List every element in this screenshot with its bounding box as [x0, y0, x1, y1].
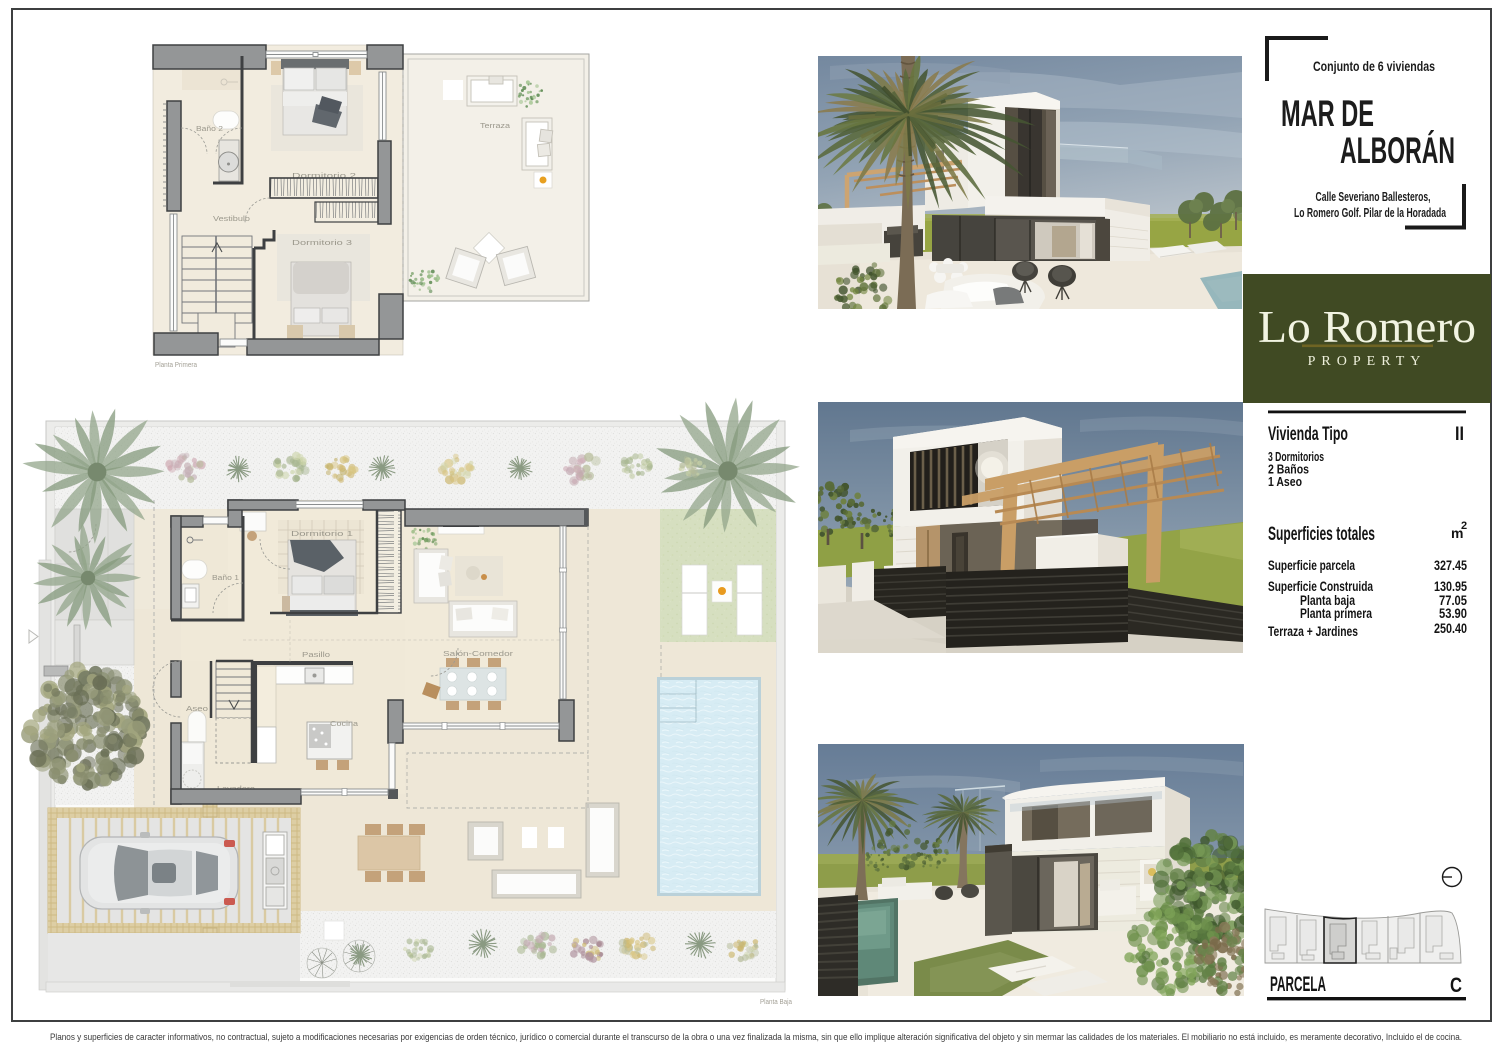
svg-text:Salón-Comedor: Salón-Comedor	[443, 649, 514, 658]
svg-text:Planos y superficies de caract: Planos y superficies de caracter informa…	[50, 1032, 1462, 1043]
svg-text:Planta primera: Planta primera	[1300, 606, 1372, 621]
svg-text:MAR DE: MAR DE	[1281, 93, 1374, 134]
svg-text:327.45: 327.45	[1434, 558, 1467, 573]
svg-text:Dormitorio 3: Dormitorio 3	[292, 238, 352, 247]
svg-text:Dormitorio 1: Dormitorio 1	[291, 529, 353, 538]
svg-text:Baño 2: Baño 2	[196, 126, 223, 133]
svg-text:PARCELA: PARCELA	[1270, 973, 1326, 996]
svg-text:Calle Severiano Ballesteros,: Calle Severiano Ballesteros,	[1316, 190, 1431, 204]
svg-text:53.90: 53.90	[1439, 606, 1467, 621]
svg-text:Vestibulo: Vestibulo	[213, 216, 250, 223]
svg-text:Conjunto de 6 viviendas: Conjunto de 6 viviendas	[1313, 59, 1435, 74]
svg-text:Terraza: Terraza	[480, 123, 510, 130]
svg-text:Planta Primera: Planta Primera	[155, 360, 198, 369]
svg-text:2: 2	[1461, 520, 1467, 532]
svg-text:C: C	[1450, 974, 1462, 997]
svg-text:Baño 1: Baño 1	[212, 575, 239, 582]
svg-text:PROPERTY: PROPERTY	[1308, 354, 1427, 369]
svg-text:Planta Baja: Planta Baja	[760, 997, 793, 1006]
svg-text:Cocina: Cocina	[330, 721, 358, 728]
svg-text:Lo Romero: Lo Romero	[1258, 301, 1476, 352]
svg-text:Lo Romero Golf. Pilar de la Ho: Lo Romero Golf. Pilar de la Horadada	[1294, 206, 1447, 220]
svg-text:Vivienda Tipo: Vivienda Tipo	[1268, 423, 1348, 445]
svg-text:Superficie Construida: Superficie Construida	[1268, 579, 1373, 594]
svg-text:ALBORÁN: ALBORÁN	[1340, 130, 1455, 171]
svg-text:Terraza + Jardines: Terraza + Jardines	[1268, 624, 1358, 639]
svg-text:Pasillo: Pasillo	[302, 652, 330, 659]
svg-text:Superficie parcela: Superficie parcela	[1268, 558, 1355, 573]
svg-text:130.95: 130.95	[1434, 579, 1467, 594]
svg-text:Aseo: Aseo	[186, 706, 208, 713]
svg-text:II: II	[1455, 423, 1464, 445]
svg-text:1 Aseo: 1 Aseo	[1268, 474, 1302, 489]
svg-text:250.40: 250.40	[1434, 621, 1467, 636]
svg-text:Superficies totales: Superficies totales	[1268, 523, 1375, 545]
